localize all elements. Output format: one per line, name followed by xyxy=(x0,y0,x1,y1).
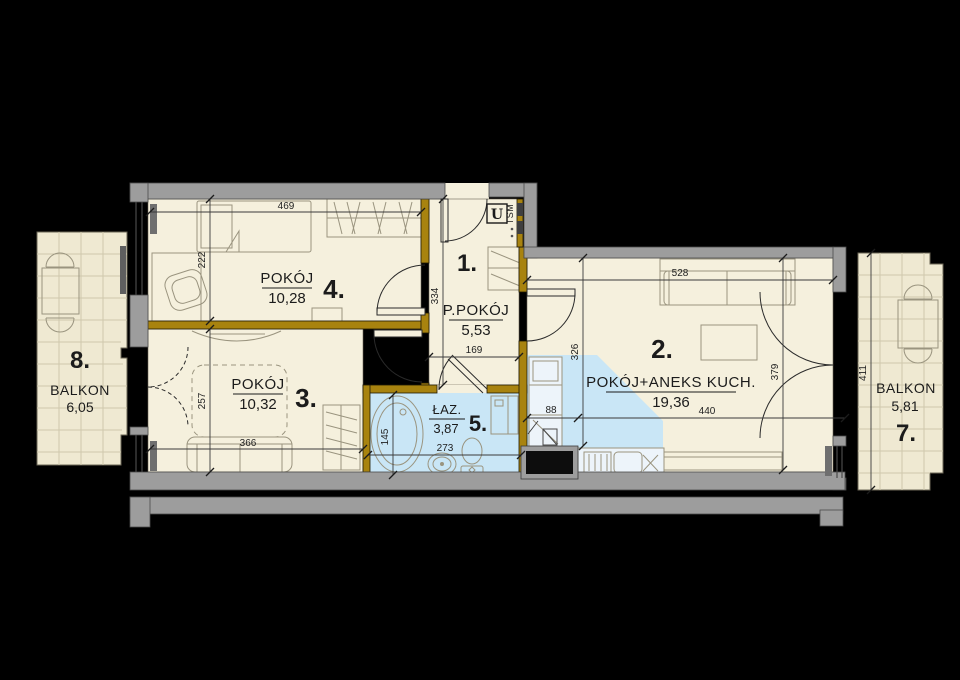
dim-room2-width-bottom: 440 xyxy=(699,406,716,417)
dim-room2-width-top: 528 xyxy=(672,268,689,279)
entrance-unit-letter: U xyxy=(491,207,503,223)
room-3-number: 3. xyxy=(295,383,317,413)
dim-balcony7-depth: 411 xyxy=(858,365,869,381)
utility-shaft xyxy=(521,446,578,479)
door-viewer-dot-2 xyxy=(511,235,514,238)
radiator-room2 xyxy=(825,446,832,476)
balcony-8-area: 6,05 xyxy=(66,399,93,415)
intercom-panel-2 xyxy=(517,221,523,234)
floor-plan-canvas: 469 222 257 366 334 169 528 326 379 440 … xyxy=(0,0,960,680)
dim-room2-depth-right: 379 xyxy=(770,363,781,380)
wall-bottom-right-step xyxy=(820,510,843,526)
window-room4 xyxy=(136,202,142,295)
room-4-area: 10,28 xyxy=(268,290,306,307)
room-1-number: 1. xyxy=(457,250,477,277)
room-2-number: 2. xyxy=(651,334,673,364)
room-3-name: POKÓJ xyxy=(231,376,284,393)
room-2-area: 19,36 xyxy=(652,394,690,411)
room-5-name: ŁAZ. xyxy=(432,402,461,417)
room-4-name: POKÓJ xyxy=(260,270,313,287)
dim-bath-width: 273 xyxy=(437,443,454,454)
balcony-7-number: 7. xyxy=(896,420,916,447)
dim-room3-width: 366 xyxy=(240,438,257,449)
wall-bottom xyxy=(130,472,845,490)
door-viewer-dot-1 xyxy=(511,228,514,231)
entrance-code-label: TSM xyxy=(505,204,515,225)
balcony-8-window-bar xyxy=(120,246,126,294)
wall-bath-top-left xyxy=(363,385,437,393)
balcony-7-area: 5,81 xyxy=(891,398,918,414)
wall-room4-room3 xyxy=(148,321,422,329)
balcony-8-number: 8. xyxy=(70,347,90,374)
wall-right-upper xyxy=(833,247,846,292)
dim-room4-width: 469 xyxy=(278,201,295,212)
balcony-8-name: BALKON xyxy=(50,382,110,398)
intercom-panel-1 xyxy=(517,203,523,216)
dim-kitchen-depth: 326 xyxy=(570,343,581,360)
room-3-area: 10,32 xyxy=(239,396,277,413)
dim-hall-depth: 334 xyxy=(430,287,441,304)
balcony-7-name: BALKON xyxy=(876,380,936,396)
dim-hall-width: 169 xyxy=(466,345,483,356)
room-5-number: 5. xyxy=(469,411,487,436)
dim-bath-depth: 145 xyxy=(380,428,391,445)
wall-top-left xyxy=(130,183,445,199)
dim-room4-depth: 222 xyxy=(197,251,208,268)
wall-bottom-band2 xyxy=(130,497,843,514)
room-1-area: 5,53 xyxy=(461,322,490,339)
wall-left-1 xyxy=(130,183,148,202)
wall-right-mid xyxy=(833,436,846,446)
room-4-number: 4. xyxy=(323,274,345,304)
window-room3 xyxy=(136,435,142,472)
door-room3 xyxy=(374,330,422,382)
wall-left-2 xyxy=(130,295,148,347)
room-2-name: POKÓJ+ANEKS KUCH. xyxy=(586,374,756,391)
wall-bottom-left-step xyxy=(130,497,150,527)
room-5-area: 3,87 xyxy=(433,421,458,436)
floor-plan-page: 469 222 257 366 334 169 528 326 379 440 … xyxy=(0,0,960,680)
wall-room2-top xyxy=(524,247,834,258)
dim-room3-depth: 257 xyxy=(197,392,208,409)
dim-kitchen-width: 88 xyxy=(545,405,557,416)
room-1-name: P.POKÓJ xyxy=(443,302,510,319)
wall-left-3 xyxy=(130,427,148,435)
